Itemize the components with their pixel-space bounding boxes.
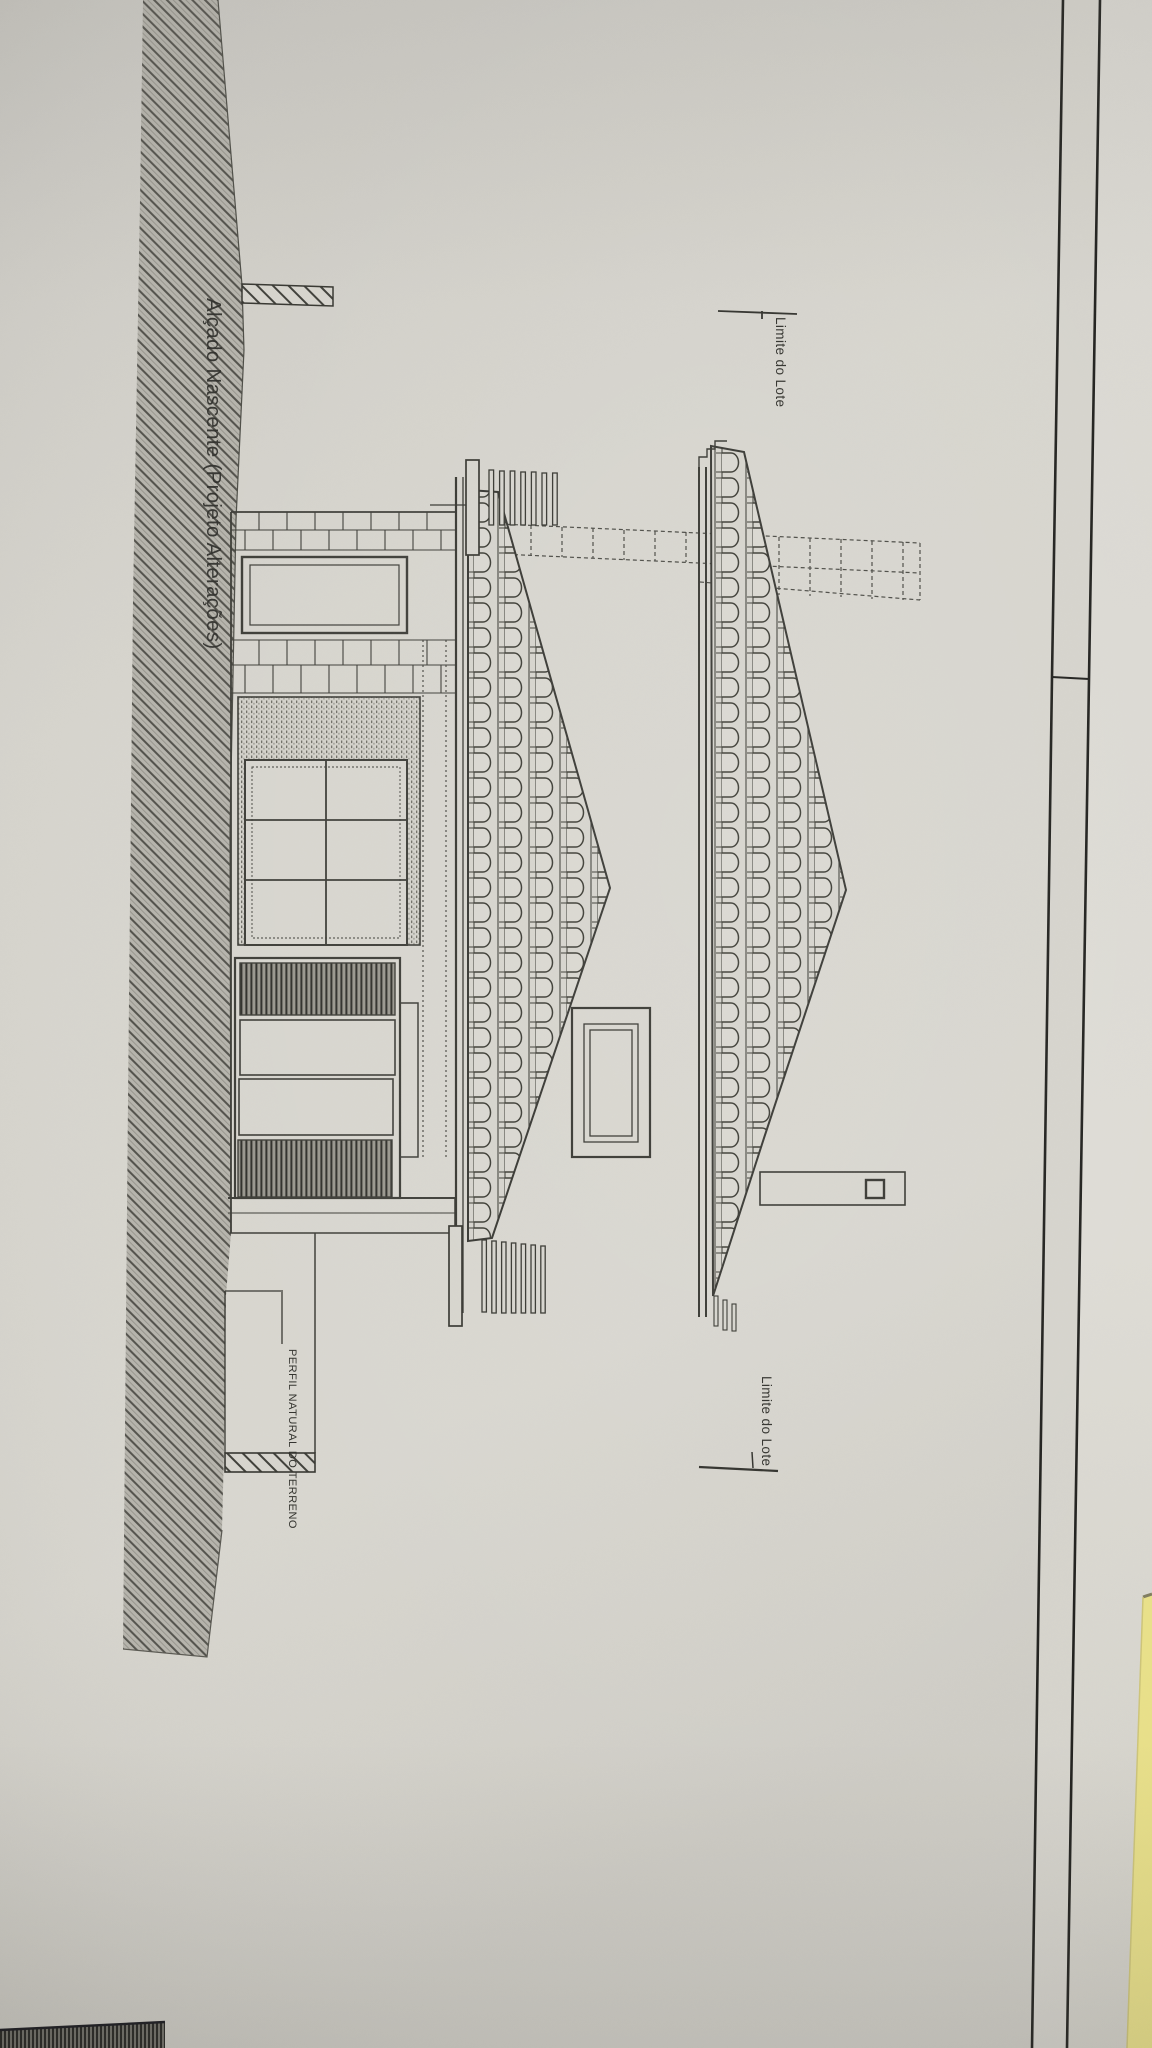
photo-vignette-overlay xyxy=(0,0,1152,2048)
drawing-photo-canvas: Alçado Nascente (Projeto Alterações) xyxy=(0,0,1152,2048)
photo-of-architectural-drawing: Alçado Nascente (Projeto Alterações) xyxy=(0,0,1152,2048)
